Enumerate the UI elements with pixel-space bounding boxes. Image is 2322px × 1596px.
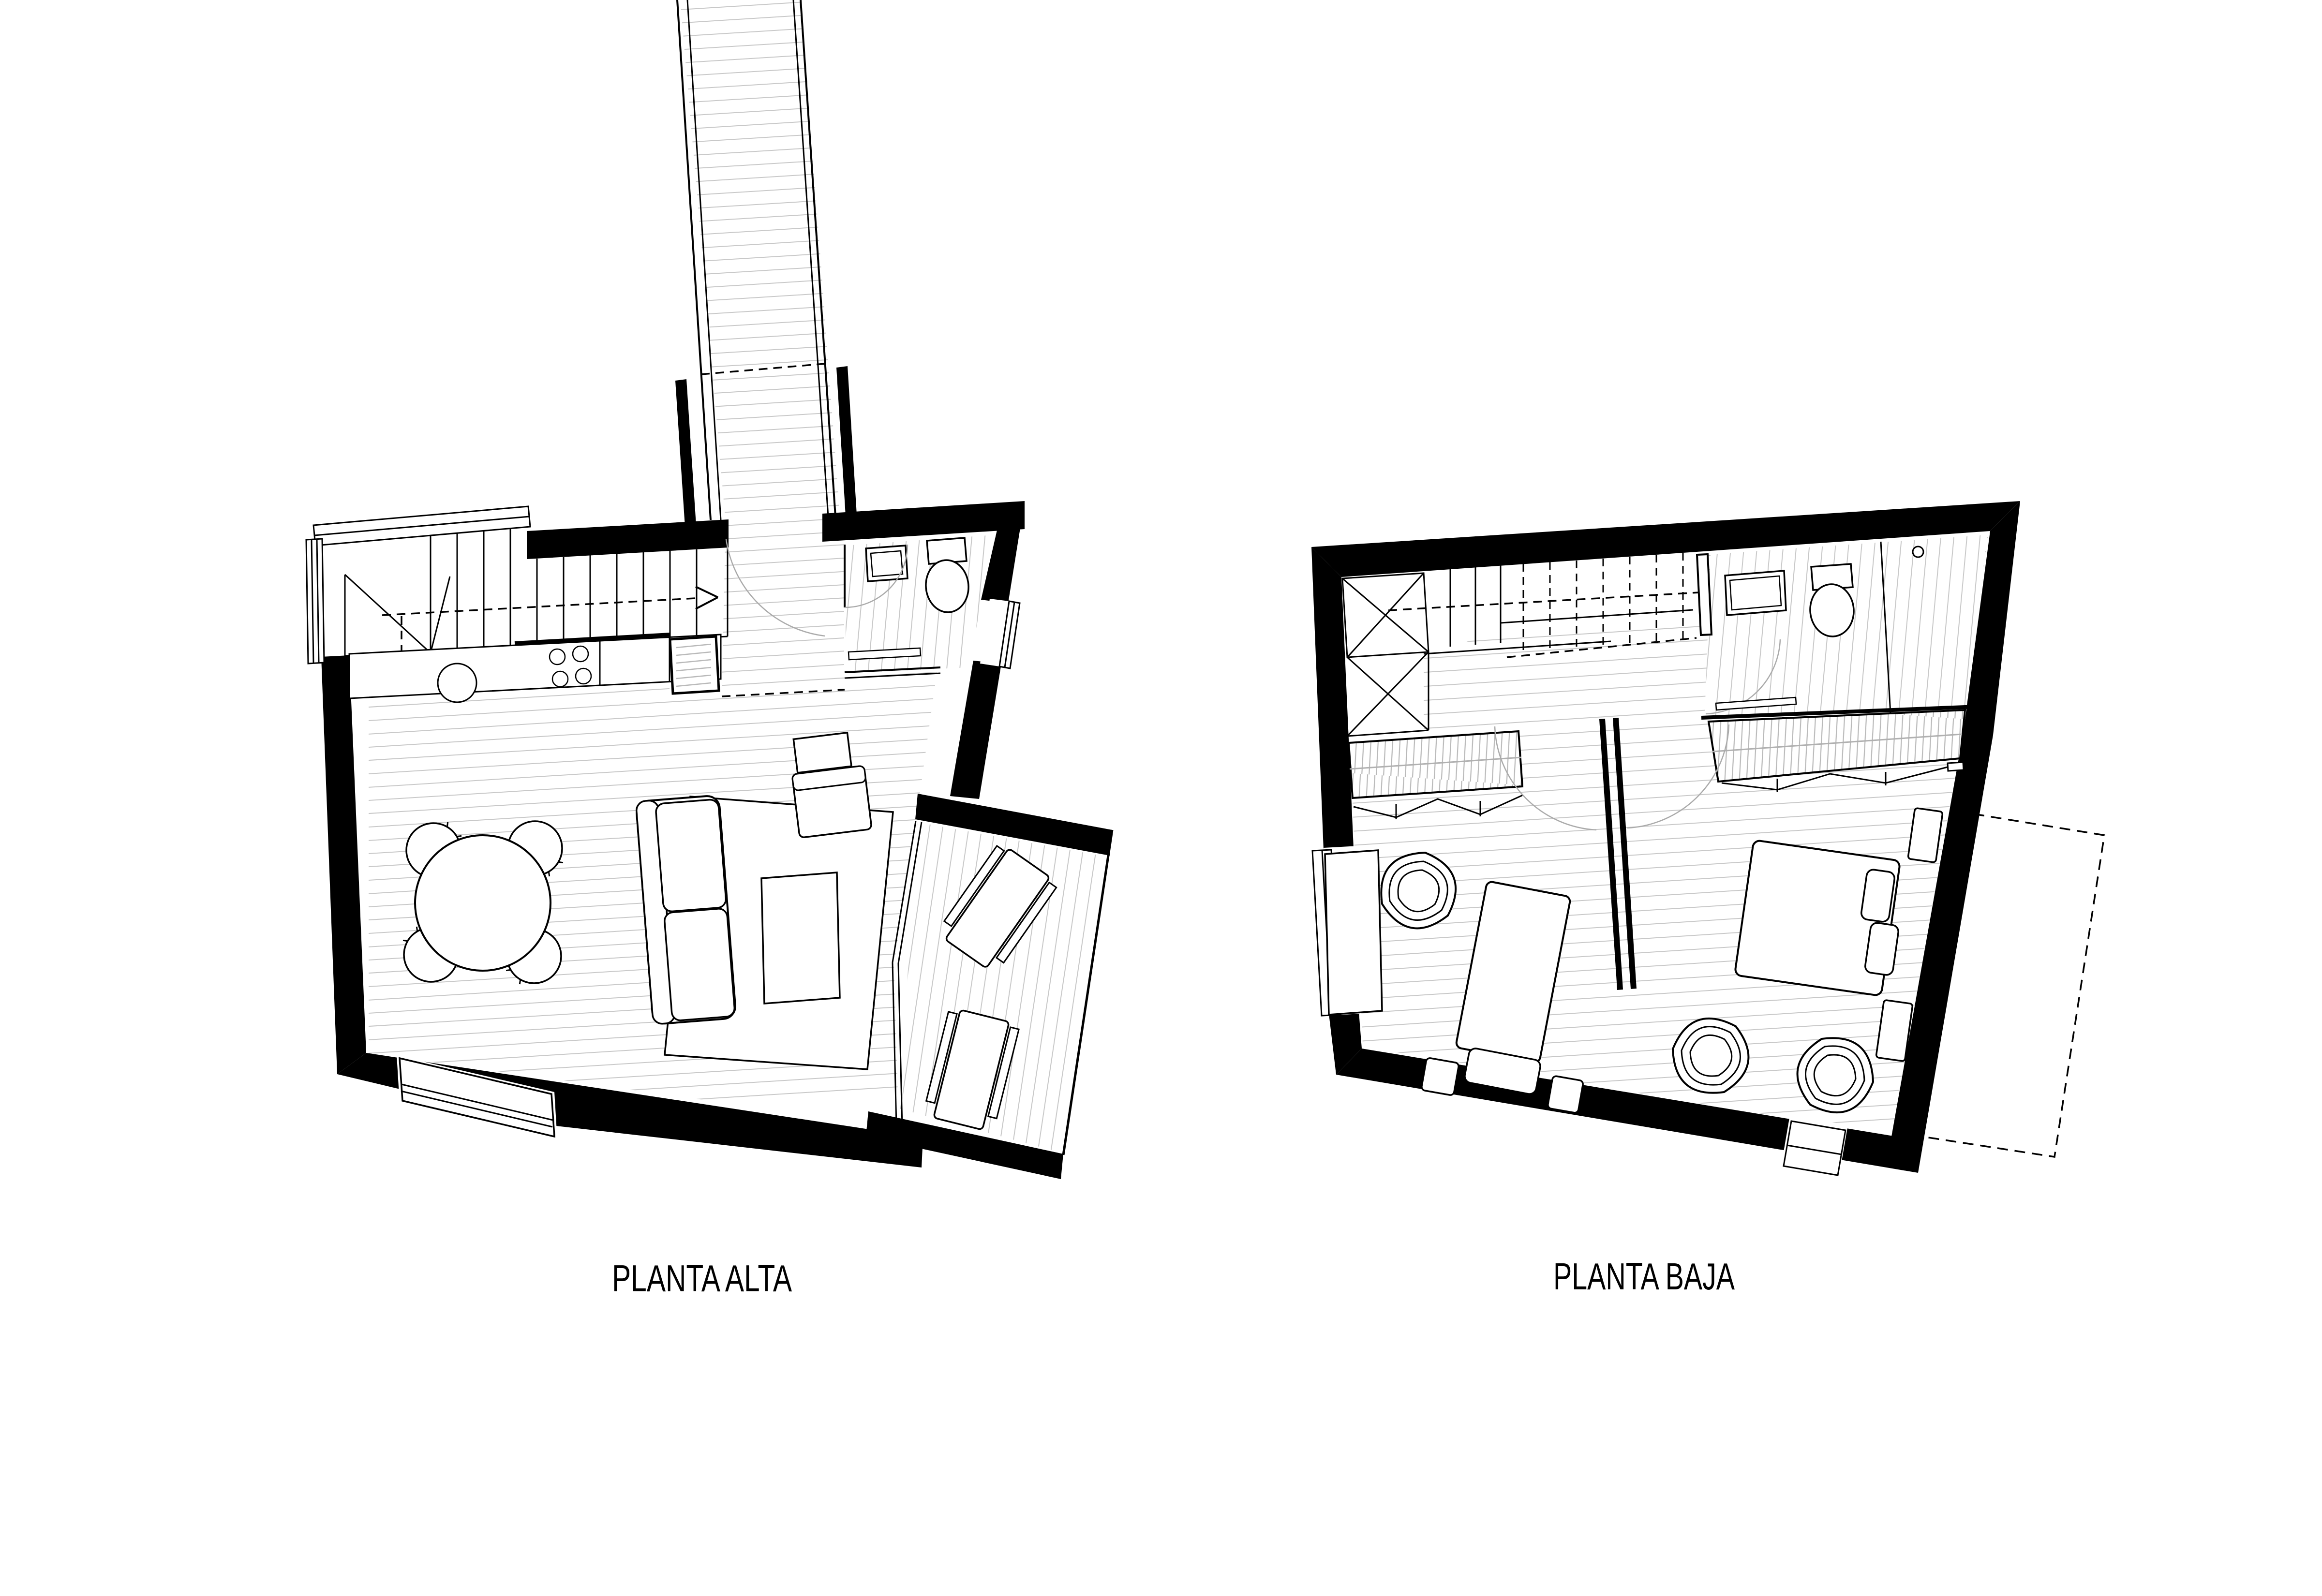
svg-text:PLANTA ALTA: PLANTA ALTA bbox=[612, 1257, 792, 1300]
svg-text:PLANTA BAJA: PLANTA BAJA bbox=[1553, 1255, 1735, 1298]
